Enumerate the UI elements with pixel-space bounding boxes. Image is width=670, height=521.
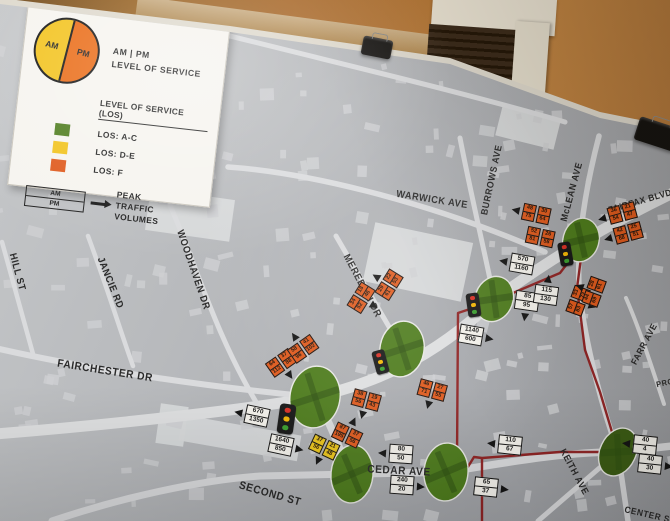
volume-value: 43	[366, 400, 379, 411]
traffic-volume-box: 44692861	[581, 276, 606, 308]
volume-value: 69	[589, 293, 600, 306]
volume-value: 51	[630, 229, 643, 240]
signal-grn-light	[471, 310, 476, 315]
arrow-right-icon	[91, 202, 106, 206]
traffic-volume-box: 38561943	[351, 388, 382, 412]
signal-grn-light	[564, 258, 569, 263]
arrow-down-icon	[520, 313, 529, 322]
volume-value-stack: 8050	[388, 444, 413, 465]
arrow-left-icon	[378, 448, 387, 457]
volume-value: 83	[573, 302, 584, 315]
traffic-volume-box: 4030	[637, 453, 663, 474]
arrow-left-icon	[597, 213, 607, 223]
traffic-light-icon	[465, 292, 481, 318]
arrow-right-icon	[500, 485, 509, 494]
volume-value-stack: 2755	[431, 382, 448, 402]
traffic-volume-box: 52812658	[525, 226, 555, 248]
pie-caption: AM | PM LEVEL OF SERVICE	[111, 45, 203, 81]
los-d-e-swatch	[52, 141, 68, 155]
volume-value-stack: 1640850	[267, 433, 294, 457]
street-label-pro: PRO	[655, 377, 670, 389]
signal-grn-light	[379, 366, 385, 372]
arrow-up-icon	[289, 331, 300, 342]
traffic-volume-box: 6537	[473, 476, 499, 497]
street-label-second-st: SECOND ST	[238, 479, 303, 508]
signal-red-light	[561, 244, 566, 249]
volume-value: 75	[522, 211, 534, 221]
street-label-fairchester-dr: FAIRCHESTER DR	[56, 358, 153, 385]
traffic-volume-box: 11067	[497, 434, 523, 455]
signal-red-light	[284, 407, 290, 413]
los-a-c-label: LOS: A-C	[97, 129, 138, 143]
traffic-volume-box: 46712755	[417, 378, 448, 402]
volume-value: 47	[624, 209, 637, 220]
volume-value-stack: 4030	[637, 453, 663, 474]
signal-yel-light	[562, 251, 567, 256]
los-f-label: LOS: F	[93, 165, 124, 178]
arrow-right-icon	[295, 444, 304, 453]
arrow-left-icon	[487, 439, 496, 448]
street-label-center-st: CENTER ST	[624, 504, 670, 521]
volume-value-stack: 2551	[627, 221, 644, 241]
volume-value: 71	[418, 386, 431, 397]
street-label-burrows-ave: BURROWS AVE	[479, 144, 505, 216]
arrow-right-icon	[664, 462, 670, 471]
volume-value: 20	[390, 484, 413, 495]
street-label-jancie-rd: JANCIE RD	[95, 256, 126, 311]
volume-value: 30	[638, 462, 661, 473]
los-f-swatch	[50, 159, 66, 173]
street-label-keith-ave: KEITH AVE	[557, 447, 590, 497]
street-label-woodhaven-dr: WOODHAVEN DR	[174, 229, 212, 312]
signal-yel-light	[470, 302, 475, 307]
volume-key-box: AM PM	[24, 185, 86, 213]
traffic-volume-box: 48753064	[521, 203, 551, 225]
traffic-volume-box: 29612253	[375, 269, 404, 301]
traffic-volume-box: 5701160	[509, 253, 536, 276]
photo-of-traffic-study-map-board: SCOTT DRWARWICK AVEBURROWS AVEMcLEAN AVE…	[0, 0, 670, 521]
los-a-c-swatch	[54, 123, 70, 137]
traffic-volume-box: 1640850	[267, 433, 294, 457]
volume-value-stack: 3064	[535, 206, 551, 225]
los-d-e-label: LOS: D-E	[95, 147, 136, 161]
volume-value: 54	[610, 213, 623, 224]
arrow-right-icon	[417, 482, 426, 491]
arrow-left-icon	[622, 439, 631, 448]
arrow-down-icon	[423, 400, 433, 410]
signal-yel-light	[283, 416, 289, 422]
volume-value-stack: 24020	[389, 475, 414, 496]
street-label-hill-st: HILL ST	[7, 252, 28, 292]
arrow-left-icon	[234, 407, 243, 416]
traffic-volume-box: 8050	[388, 444, 413, 465]
arrow-left-icon	[499, 256, 508, 265]
arrow-up-icon	[370, 271, 381, 282]
volume-value-stack: 6537	[473, 476, 499, 497]
street-label-warwick-ave: WARWICK AVE	[395, 189, 468, 211]
am-pm-pie-chart-icon: AM PM	[27, 10, 107, 90]
traffic-volume-box: 24020	[389, 475, 414, 496]
traffic-volume-box: 115130	[533, 284, 559, 306]
traffic-volume-box: 6701350	[243, 404, 270, 428]
arrow-down-icon	[312, 456, 323, 467]
volume-value-stack: 2658	[539, 229, 555, 248]
signal-grn-light	[282, 425, 288, 431]
traffic-volume-box: 42682551	[613, 221, 644, 245]
volume-value: 50	[389, 453, 412, 464]
signal-red-light	[469, 295, 474, 300]
signal-yel-light	[377, 359, 383, 365]
pie-pm-label: PM	[76, 47, 91, 60]
pie-am-label: AM	[44, 38, 59, 51]
volume-value-stack: 115130	[533, 284, 559, 306]
volume-value-stack: 6701350	[243, 404, 270, 428]
volume-value: 56	[352, 396, 365, 407]
street-label-mclean-ave: McLEAN AVE	[559, 161, 585, 223]
volume-value-stack: 5701160	[509, 253, 536, 276]
volume-value: 55	[432, 390, 445, 401]
arrow-right-icon	[485, 334, 494, 343]
volume-value: 67	[498, 443, 521, 454]
street-label-farr-ave: FARR AVE	[629, 322, 659, 367]
traffic-light-icon	[276, 403, 296, 435]
traffic-volume-box: 404	[632, 434, 658, 455]
volume-value: 64	[536, 214, 548, 224]
volume-value-stack: 11067	[497, 434, 523, 455]
volume-value: 37	[474, 485, 497, 496]
volume-value: 58	[540, 237, 552, 247]
volume-value: 130	[534, 293, 557, 305]
volume-value: 81	[526, 234, 538, 244]
signal-red-light	[375, 352, 381, 358]
arrow-down-icon	[284, 370, 295, 381]
traffic-light-icon	[371, 349, 390, 376]
volume-value-stack: 1140600	[458, 324, 485, 347]
map-legend: AM PM AM | PM LEVEL OF SERVICE LEVEL OF …	[7, 2, 231, 208]
los-heading: LEVEL OF SERVICE (LOS)	[98, 98, 210, 132]
volume-value-stack: 1943	[365, 392, 382, 412]
volume-value-stack: 404	[632, 434, 658, 455]
volume-value: 68	[616, 233, 629, 244]
traffic-volume-box: 1140600	[458, 324, 485, 347]
arrow-left-icon	[603, 233, 613, 243]
arrow-up-icon	[544, 274, 553, 283]
traffic-light-icon	[557, 241, 574, 267]
arrow-left-icon	[511, 205, 520, 214]
